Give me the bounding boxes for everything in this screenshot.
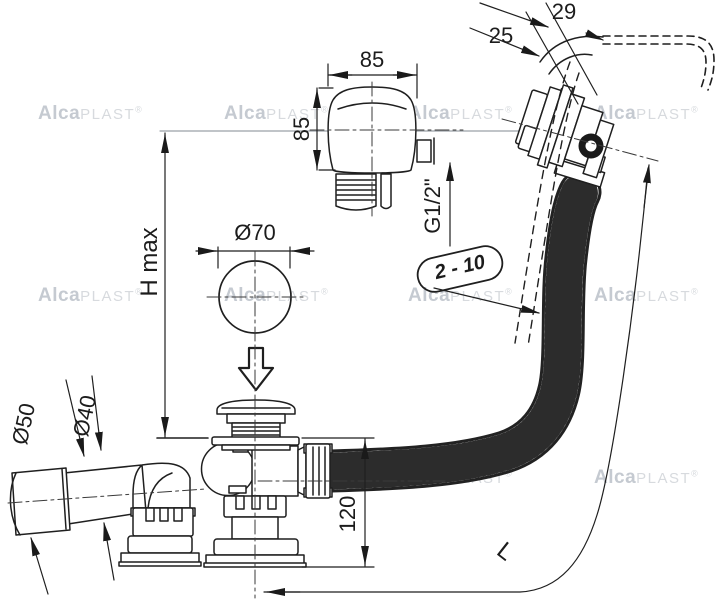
knob-side-nipple [417, 140, 431, 162]
dim-label-thread: G1/2" [420, 178, 446, 234]
drain-base-flange [214, 539, 298, 555]
insert-arrow [239, 348, 273, 390]
outlet-elbow-nut [131, 508, 195, 536]
bath-rim-dashed [603, 36, 714, 90]
dim-label-overflow-offset: 29 [552, 0, 576, 25]
outlet-base-flange [119, 536, 201, 566]
knob-pin [381, 174, 391, 209]
drain-assembly [202, 400, 333, 567]
flexible-hose [331, 192, 580, 471]
control-knob [328, 87, 434, 210]
dim-label-knob-width: 85 [360, 47, 384, 73]
technical-drawing: AlcaPLAST® AlcaPLAST® AlcaPLAST® AlcaPLA… [0, 0, 725, 600]
drain-plug [217, 400, 295, 414]
dim-label-trap-height: 120 [335, 496, 361, 533]
dim-label-height-max: H max [136, 227, 164, 296]
bath-rim-hook [540, 36, 603, 74]
dim-label-overflow-inner: 25 [489, 23, 513, 49]
dim-label-plug-diameter: Ø70 [234, 220, 276, 246]
dim-label-knob-height: 85 [289, 117, 315, 141]
drawing-linework [0, 0, 725, 600]
